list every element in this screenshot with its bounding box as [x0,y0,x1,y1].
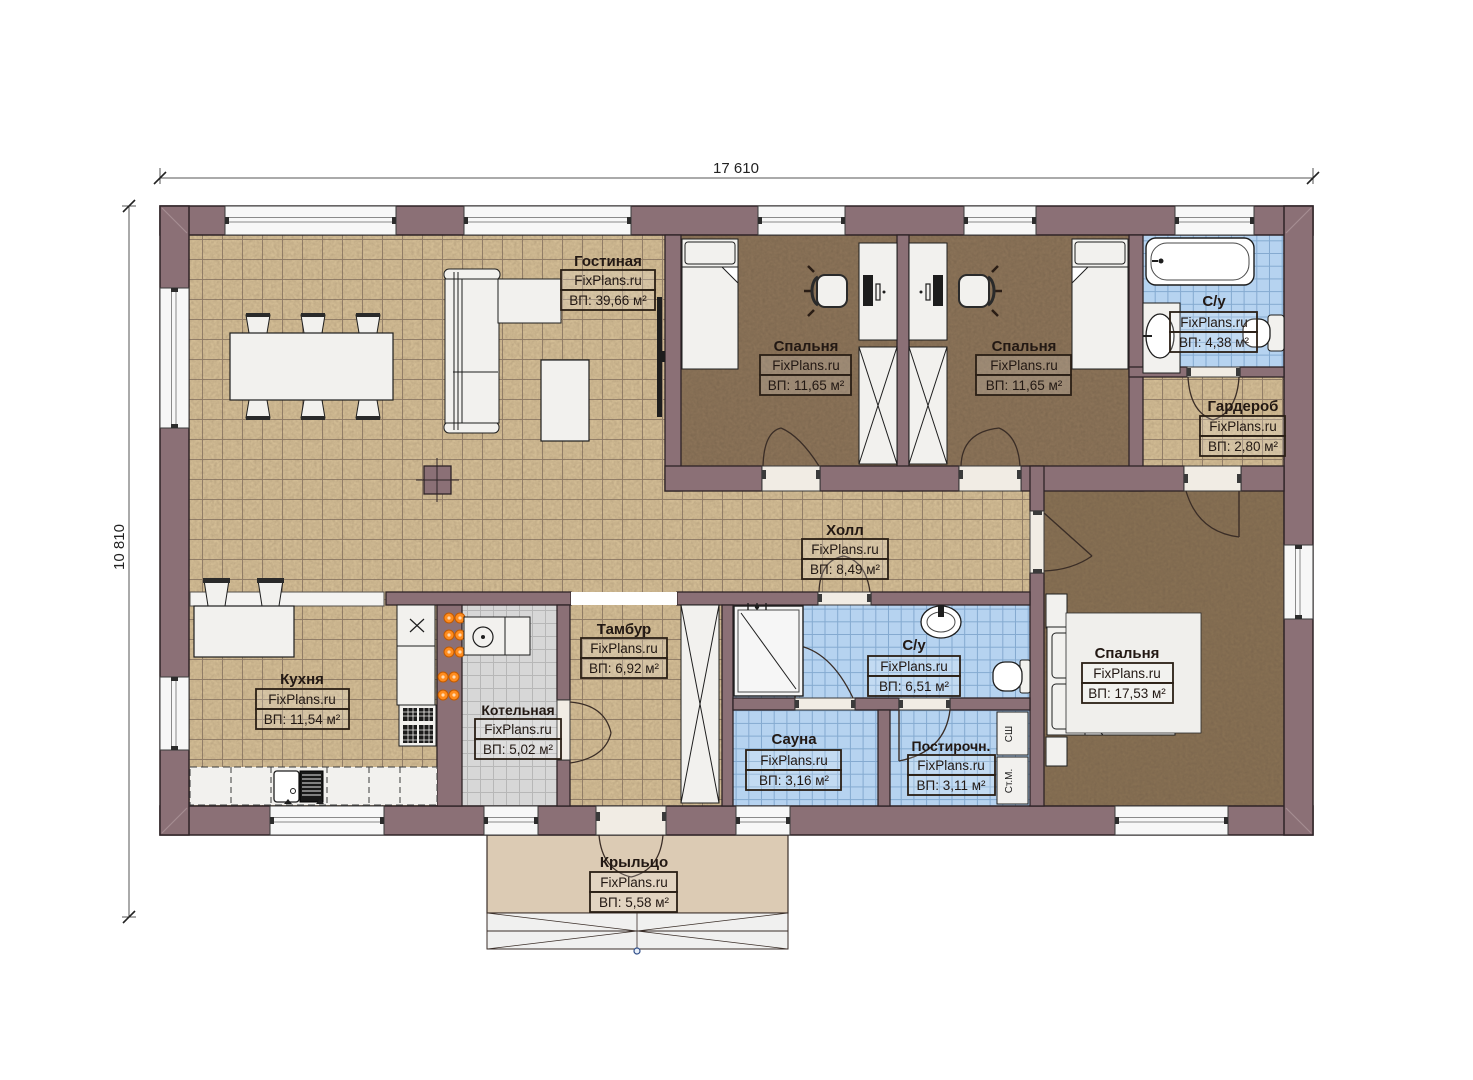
svg-text:FixPlans.ru: FixPlans.ru [1093,666,1161,681]
svg-text:ВП: 6,51 м²: ВП: 6,51 м² [879,679,950,694]
svg-text:ВП: 39,66 м²: ВП: 39,66 м² [569,293,647,308]
svg-text:Тамбур: Тамбур [597,621,651,638]
svg-text:FixPlans.ru: FixPlans.ru [880,659,948,674]
svg-text:ВП: 2,80 м²: ВП: 2,80 м² [1208,439,1279,454]
svg-text:FixPlans.ru: FixPlans.ru [772,358,840,373]
svg-text:ВП: 17,53 м²: ВП: 17,53 м² [1088,686,1166,701]
svg-text:FixPlans.ru: FixPlans.ru [760,753,828,768]
svg-text:17 610: 17 610 [713,160,759,177]
svg-text:СШ: СШ [1004,726,1015,742]
svg-text:ВП: 3,16 м²: ВП: 3,16 м² [759,773,830,788]
svg-text:FixPlans.ru: FixPlans.ru [600,875,668,890]
svg-text:FixPlans.ru: FixPlans.ru [1180,315,1248,330]
svg-text:ВП: 4,38 м²: ВП: 4,38 м² [1179,335,1250,350]
svg-text:Гардероб: Гардероб [1208,398,1279,415]
svg-text:Гостиная: Гостиная [574,253,642,270]
svg-text:Крыльцо: Крыльцо [600,854,668,871]
svg-text:FixPlans.ru: FixPlans.ru [268,692,336,707]
svg-text:ВП: 11,54 м²: ВП: 11,54 м² [264,712,341,727]
svg-text:FixPlans.ru: FixPlans.ru [917,758,985,773]
svg-text:ВП: 6,92 м²: ВП: 6,92 м² [589,661,660,676]
svg-text:ВП: 3,11 м²: ВП: 3,11 м² [916,778,986,793]
svg-text:С/у: С/у [1202,293,1226,310]
svg-text:С/у: С/у [902,637,926,654]
svg-text:Кухня: Кухня [280,671,324,688]
svg-text:FixPlans.ru: FixPlans.ru [1209,419,1277,434]
svg-text:FixPlans.ru: FixPlans.ru [574,273,642,288]
svg-text:Постирочн.: Постирочн. [912,738,991,754]
svg-text:ВП: 5,58 м²: ВП: 5,58 м² [599,895,670,910]
svg-text:10 810: 10 810 [111,524,128,570]
svg-text:ВП: 11,65 м²: ВП: 11,65 м² [986,378,1063,393]
svg-text:Холл: Холл [826,522,864,539]
svg-text:Котельная: Котельная [481,702,554,718]
svg-text:FixPlans.ru: FixPlans.ru [590,641,658,656]
svg-text:Спальня: Спальня [992,338,1057,355]
svg-text:Ст.М.: Ст.М. [1004,769,1015,794]
svg-text:FixPlans.ru: FixPlans.ru [811,542,879,557]
svg-text:ВП: 11,65 м²: ВП: 11,65 м² [768,378,845,393]
svg-text:Спальня: Спальня [1095,645,1160,662]
svg-text:FixPlans.ru: FixPlans.ru [484,722,552,737]
svg-text:FixPlans.ru: FixPlans.ru [990,358,1058,373]
svg-text:Сауна: Сауна [771,731,817,748]
svg-text:Спальня: Спальня [774,338,839,355]
svg-text:ВП: 8,49 м²: ВП: 8,49 м² [810,562,881,577]
svg-text:ВП: 5,02 м²: ВП: 5,02 м² [483,742,554,757]
